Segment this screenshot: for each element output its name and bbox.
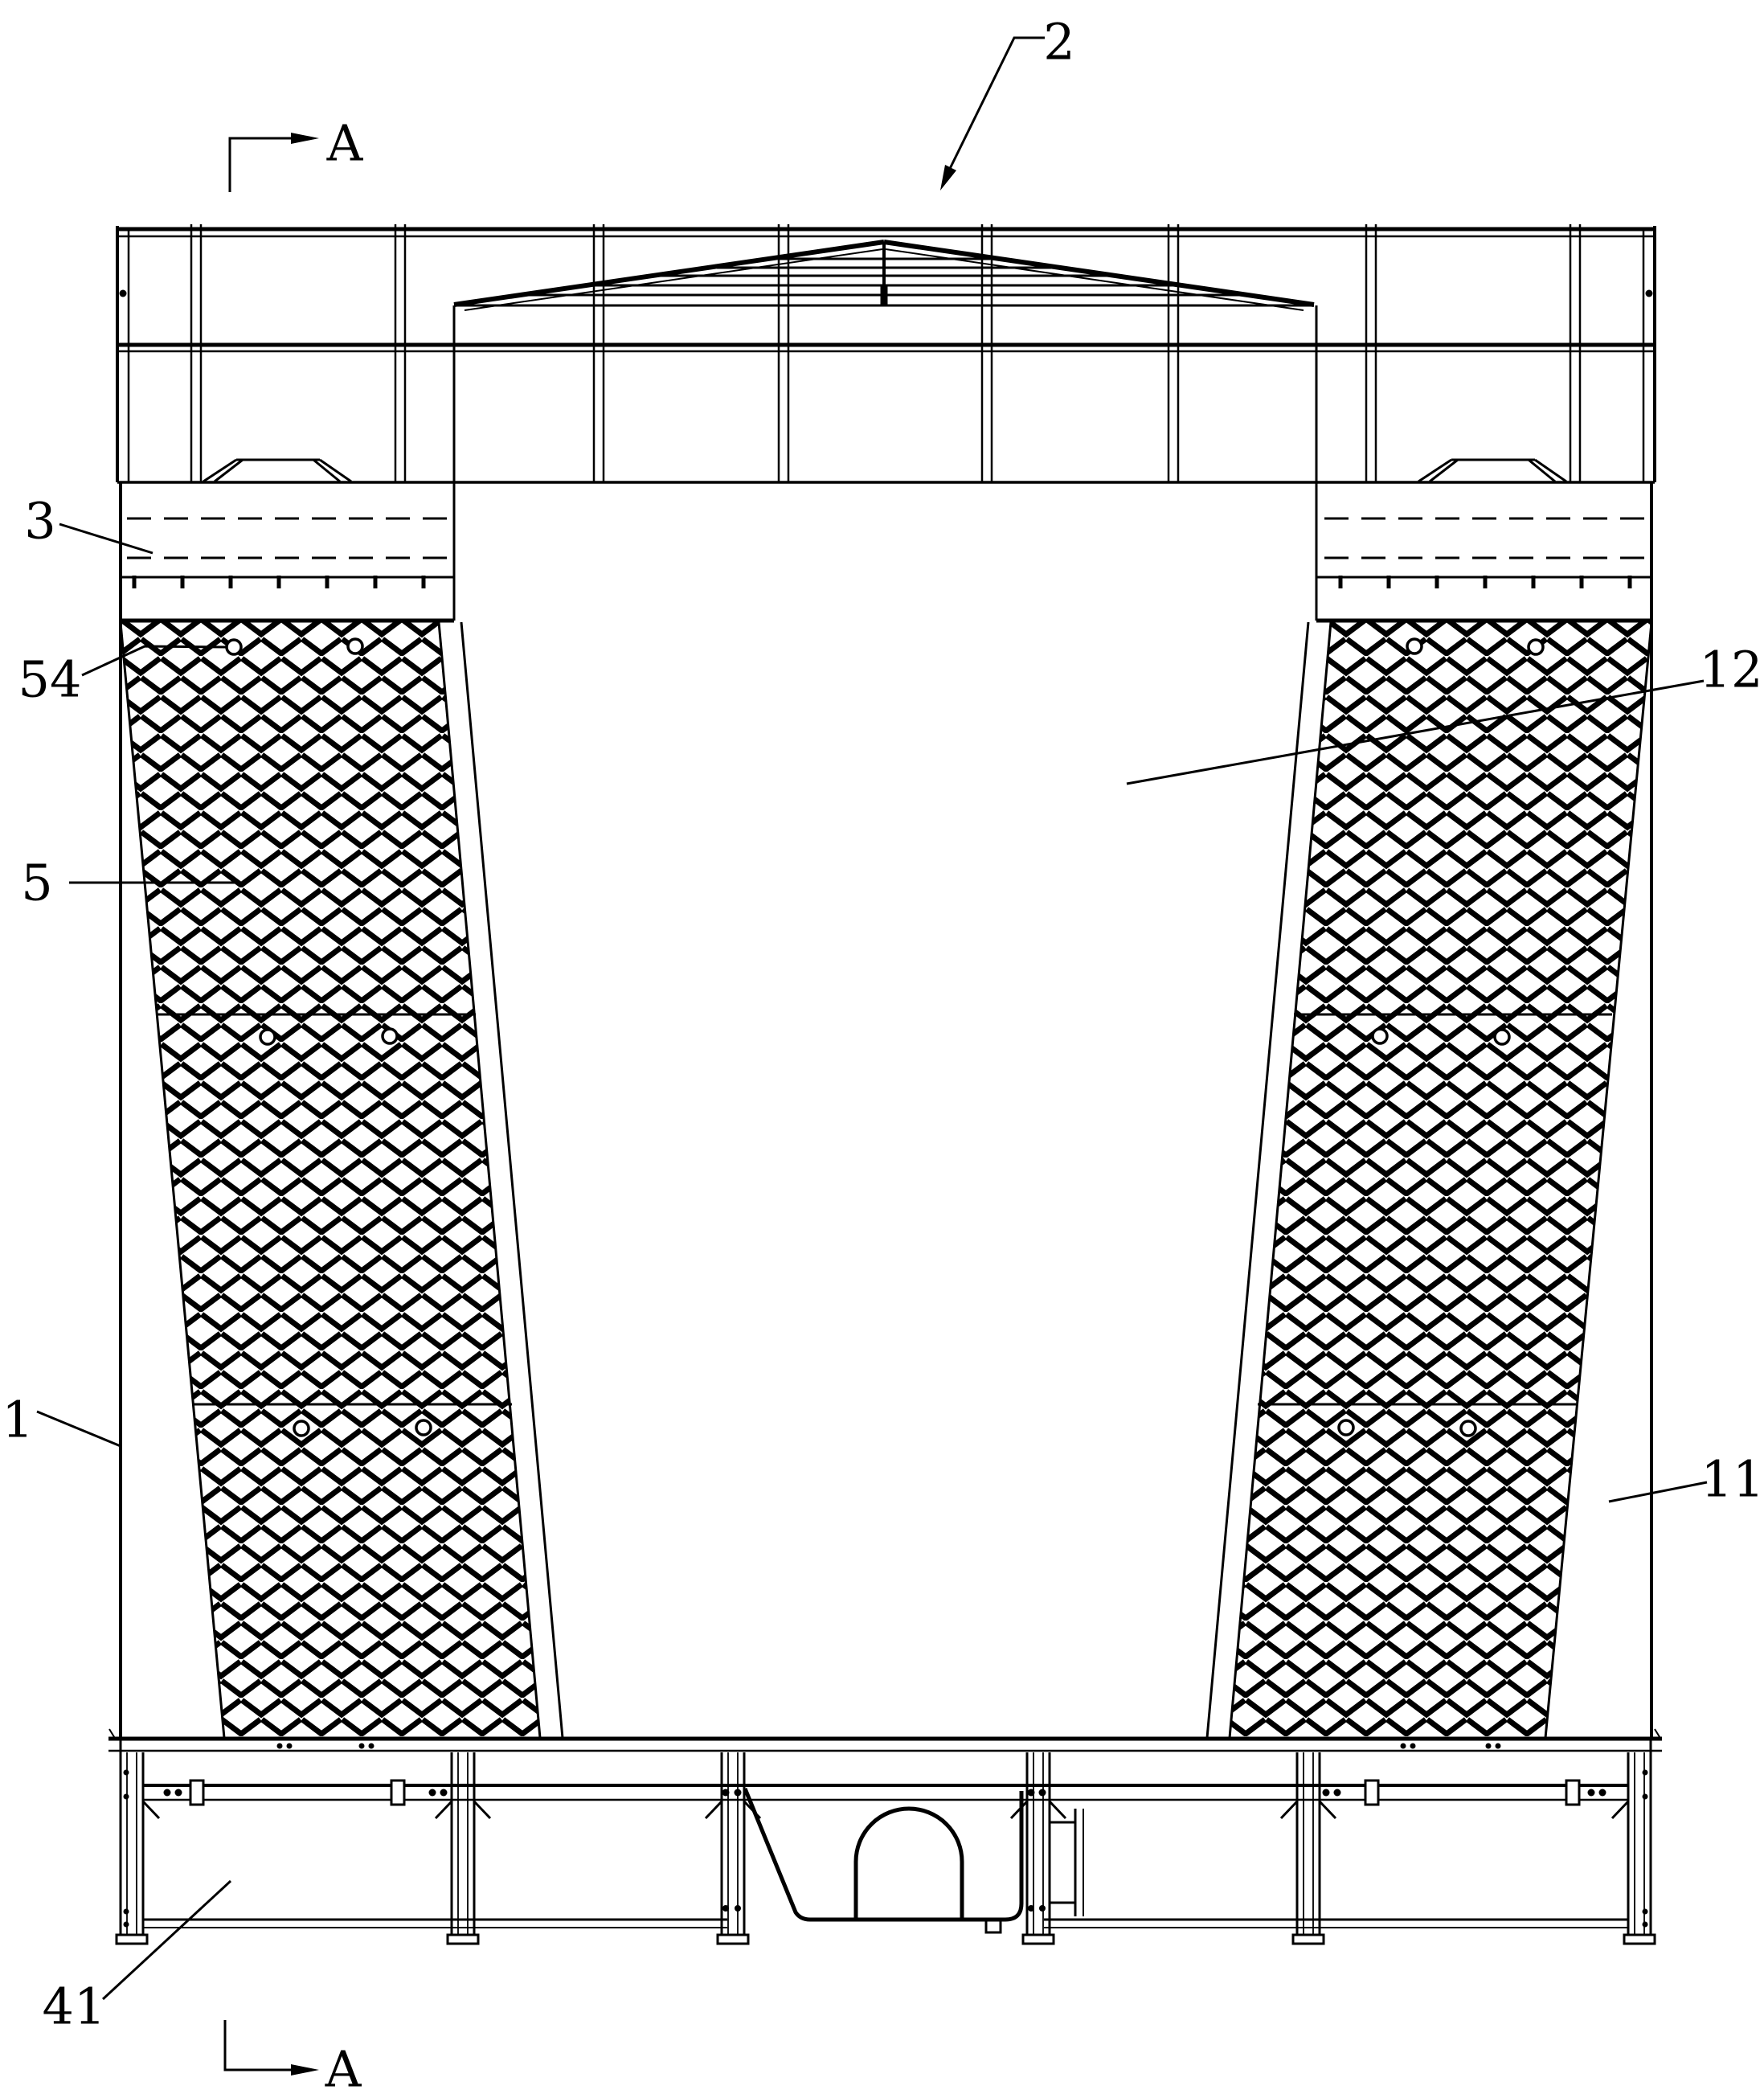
fill-panel-right — [1207, 621, 1651, 1738]
handrail — [117, 224, 1655, 482]
water-distribution-right — [1316, 518, 1651, 588]
label-2: 2 — [1043, 13, 1074, 72]
label-3: 3 — [24, 492, 55, 551]
label-12: 12 — [1700, 641, 1763, 699]
patent-drawing-page: 235451411112AA — [0, 0, 1764, 2094]
base-frame — [108, 1729, 1662, 1944]
wall-bolt-right — [1646, 290, 1653, 297]
fill-panel-left — [121, 621, 563, 1738]
leader-41 — [103, 1881, 231, 1999]
water-distribution-left — [121, 518, 454, 588]
section-label-A-bottom: A — [325, 2040, 362, 2094]
leader-1 — [37, 1412, 121, 1446]
section-label-A-top: A — [326, 114, 364, 173]
label-11: 11 — [1701, 1450, 1764, 1509]
left-mount-foot — [203, 460, 351, 481]
leader-2 — [944, 38, 1045, 180]
section-line-A-top — [230, 138, 309, 192]
section-arrow-A-top — [291, 133, 319, 144]
elevation-drawing: 235451411112AA — [0, 0, 1764, 2094]
right-mount-foot — [1418, 460, 1566, 481]
outlet-flange — [1050, 1809, 1083, 1916]
label-5: 5 — [21, 854, 52, 912]
leader-arrow-2 — [940, 165, 956, 191]
label-1: 1 — [2, 1391, 33, 1449]
label-54: 54 — [18, 650, 82, 709]
leader-11 — [1609, 1482, 1707, 1502]
fan-cowl-louvre-roof — [454, 242, 1316, 621]
section-line-A-bottom — [225, 2020, 309, 2070]
section-arrow-A-bottom — [291, 2064, 319, 2076]
wall-bolt-left — [120, 290, 127, 297]
leader-3 — [59, 524, 153, 553]
label-41: 41 — [43, 1977, 106, 2036]
fan-deck — [117, 460, 1655, 482]
